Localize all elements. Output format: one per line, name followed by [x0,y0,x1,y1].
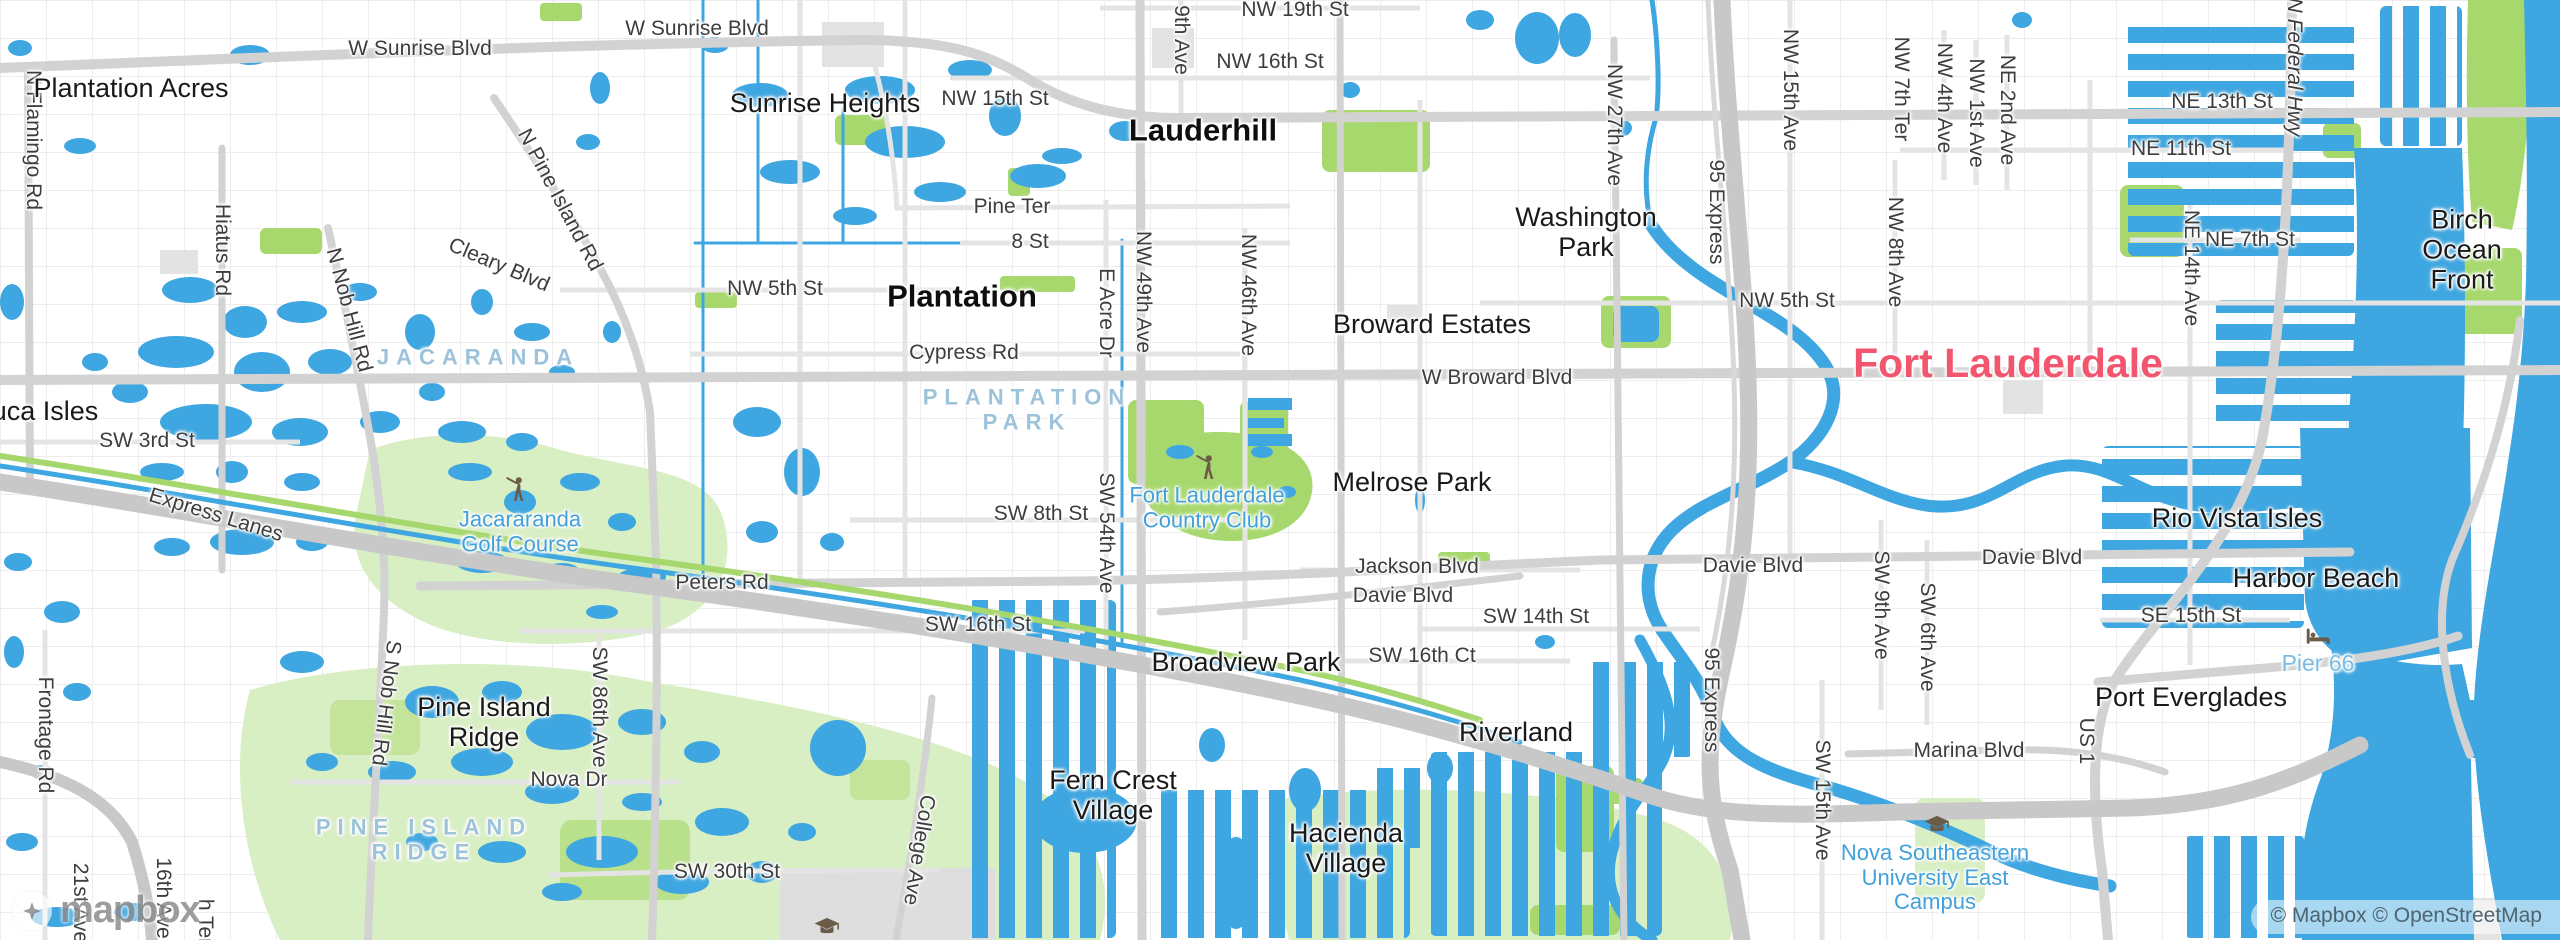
attribution-text: © Mapbox © OpenStreetMap [2271,904,2542,927]
mapbox-logo[interactable]: mapbox [12,889,200,932]
mapbox-wordmark: mapbox [60,889,200,932]
map-graphics [0,0,2560,940]
mapbox-logo-icon [12,891,52,931]
attribution-bar[interactable]: © Mapbox © OpenStreetMap [2251,900,2560,934]
map-canvas[interactable]: W Sunrise BlvdW Sunrise BlvdNW 19th StNW… [0,0,2560,940]
